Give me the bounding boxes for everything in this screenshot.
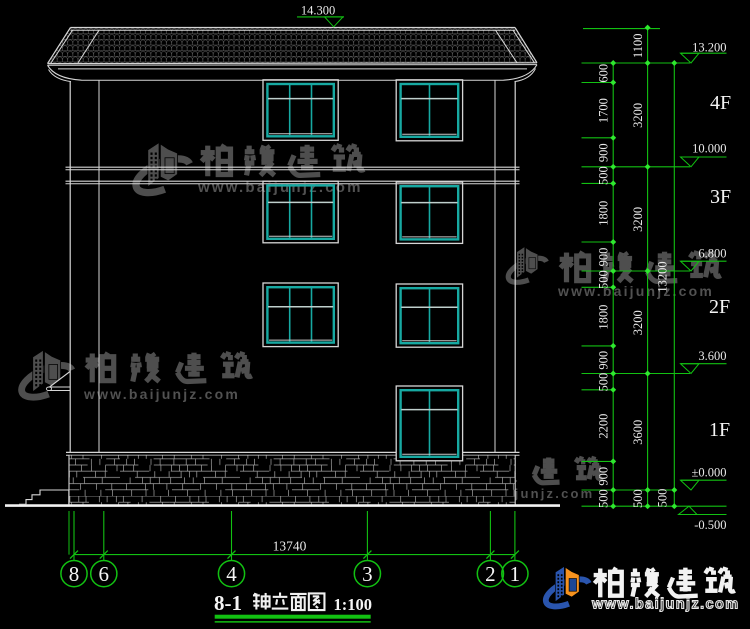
svg-text:13740: 13740 xyxy=(273,539,307,554)
svg-text:8-1: 8-1 xyxy=(214,591,242,615)
svg-text:±0.000: ±0.000 xyxy=(692,466,727,480)
svg-text:3: 3 xyxy=(362,562,373,586)
svg-text:900: 900 xyxy=(597,143,611,162)
svg-text:www.baijunjz.com: www.baijunjz.com xyxy=(557,283,714,299)
svg-text:3600: 3600 xyxy=(631,420,645,445)
svg-text:1F: 1F xyxy=(709,419,730,441)
svg-text:www.baijunjz.com: www.baijunjz.com xyxy=(591,597,740,613)
svg-text:4: 4 xyxy=(226,562,237,586)
svg-text:2F: 2F xyxy=(709,296,730,318)
svg-text:3.600: 3.600 xyxy=(698,349,726,363)
svg-text:1700: 1700 xyxy=(597,98,611,123)
svg-text:500: 500 xyxy=(597,489,611,508)
svg-text:600: 600 xyxy=(597,64,611,83)
svg-text:13.200: 13.200 xyxy=(692,41,726,55)
svg-text:500: 500 xyxy=(597,270,611,289)
svg-text:www.baijunjz.com: www.baijunjz.com xyxy=(83,386,240,402)
svg-text:6: 6 xyxy=(99,562,110,586)
svg-text:500: 500 xyxy=(597,373,611,392)
svg-text:3F: 3F xyxy=(710,186,731,208)
svg-text:900: 900 xyxy=(597,467,611,486)
svg-text:1800: 1800 xyxy=(597,201,611,226)
svg-text:-0.500: -0.500 xyxy=(694,518,726,532)
svg-text:3200: 3200 xyxy=(631,103,645,128)
svg-text:1100: 1100 xyxy=(631,34,645,59)
svg-text:14.300: 14.300 xyxy=(301,4,335,18)
svg-text:4F: 4F xyxy=(710,92,731,114)
svg-text:8: 8 xyxy=(69,562,80,586)
svg-text:900: 900 xyxy=(597,351,611,370)
svg-text:2200: 2200 xyxy=(597,414,611,439)
svg-text:1: 1 xyxy=(510,562,521,586)
svg-text:500: 500 xyxy=(656,489,670,508)
svg-text:1:100: 1:100 xyxy=(334,595,373,614)
svg-text:500: 500 xyxy=(631,489,645,508)
svg-text:3200: 3200 xyxy=(631,310,645,335)
svg-text:13200: 13200 xyxy=(656,261,670,292)
svg-text:500: 500 xyxy=(597,166,611,185)
svg-text:1800: 1800 xyxy=(597,305,611,330)
svg-text:3200: 3200 xyxy=(631,207,645,232)
svg-text:6.800: 6.800 xyxy=(698,247,726,261)
svg-text:900: 900 xyxy=(597,248,611,267)
svg-text:2: 2 xyxy=(485,562,496,586)
svg-text:10.000: 10.000 xyxy=(692,142,726,156)
